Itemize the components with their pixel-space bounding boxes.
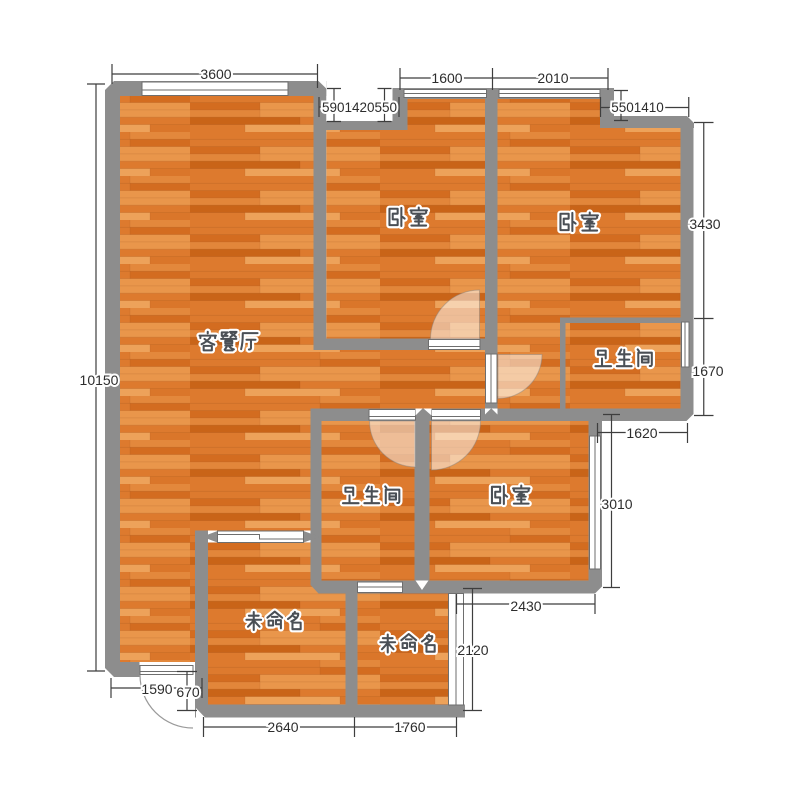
svg-text:1670: 1670	[692, 363, 723, 379]
svg-text:1760: 1760	[394, 719, 425, 735]
svg-text:1600: 1600	[431, 70, 462, 86]
svg-text:3430: 3430	[689, 216, 720, 232]
svg-text:2010: 2010	[537, 70, 568, 86]
svg-text:1590: 1590	[141, 681, 172, 697]
svg-text:2120: 2120	[457, 642, 488, 658]
svg-text:2640: 2640	[267, 719, 298, 735]
svg-text:1620: 1620	[626, 425, 657, 441]
svg-text:2430: 2430	[510, 598, 541, 614]
svg-text:3010: 3010	[601, 496, 632, 512]
svg-text:10150: 10150	[80, 372, 119, 388]
svg-text:5501410: 5501410	[611, 100, 664, 115]
svg-text:5901420550: 5901420550	[322, 100, 397, 115]
svg-text:3600: 3600	[200, 66, 231, 82]
svg-text:670: 670	[176, 684, 200, 700]
